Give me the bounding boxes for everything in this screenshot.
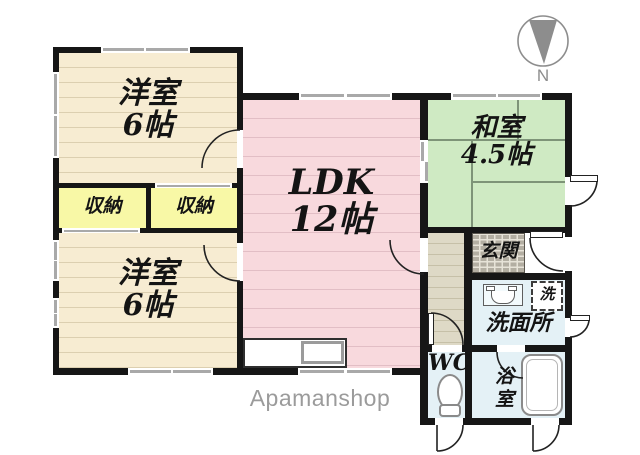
label-entrance: 玄関 xyxy=(472,242,525,262)
label-laundry: 洗 xyxy=(531,287,563,303)
room-name: 洋室 xyxy=(59,258,237,290)
room-name: LDK xyxy=(243,165,420,202)
room-name: 和室 xyxy=(428,115,565,142)
label-washroom: 洗面所 xyxy=(472,312,565,335)
floor-plan: N 洋室 6帖 収納 収納 洋室 6帖 LDK 12帖 和室 4.5帖 玄関 洗… xyxy=(0,0,640,455)
label-closet-right: 収納 xyxy=(151,197,237,217)
room-size: 6帖 xyxy=(59,110,237,142)
compass-north-label: N xyxy=(533,66,553,86)
room-size: 4.5帖 xyxy=(428,142,565,169)
room-name: 洋室 xyxy=(59,78,237,110)
label-japanese-room: 和室 4.5帖 xyxy=(428,115,565,170)
label-wc: WC xyxy=(428,352,465,375)
room-size: 12帖 xyxy=(243,202,420,239)
label-bathroom: 浴室 xyxy=(492,362,512,416)
label-ldk: LDK 12帖 xyxy=(243,165,420,239)
label-western-room-bottom: 洋室 6帖 xyxy=(59,258,237,321)
label-western-room-top: 洋室 6帖 xyxy=(59,78,237,141)
label-closet-left: 収納 xyxy=(59,197,146,217)
watermark: Apamanshop xyxy=(240,385,400,412)
room-size: 6帖 xyxy=(59,290,237,322)
